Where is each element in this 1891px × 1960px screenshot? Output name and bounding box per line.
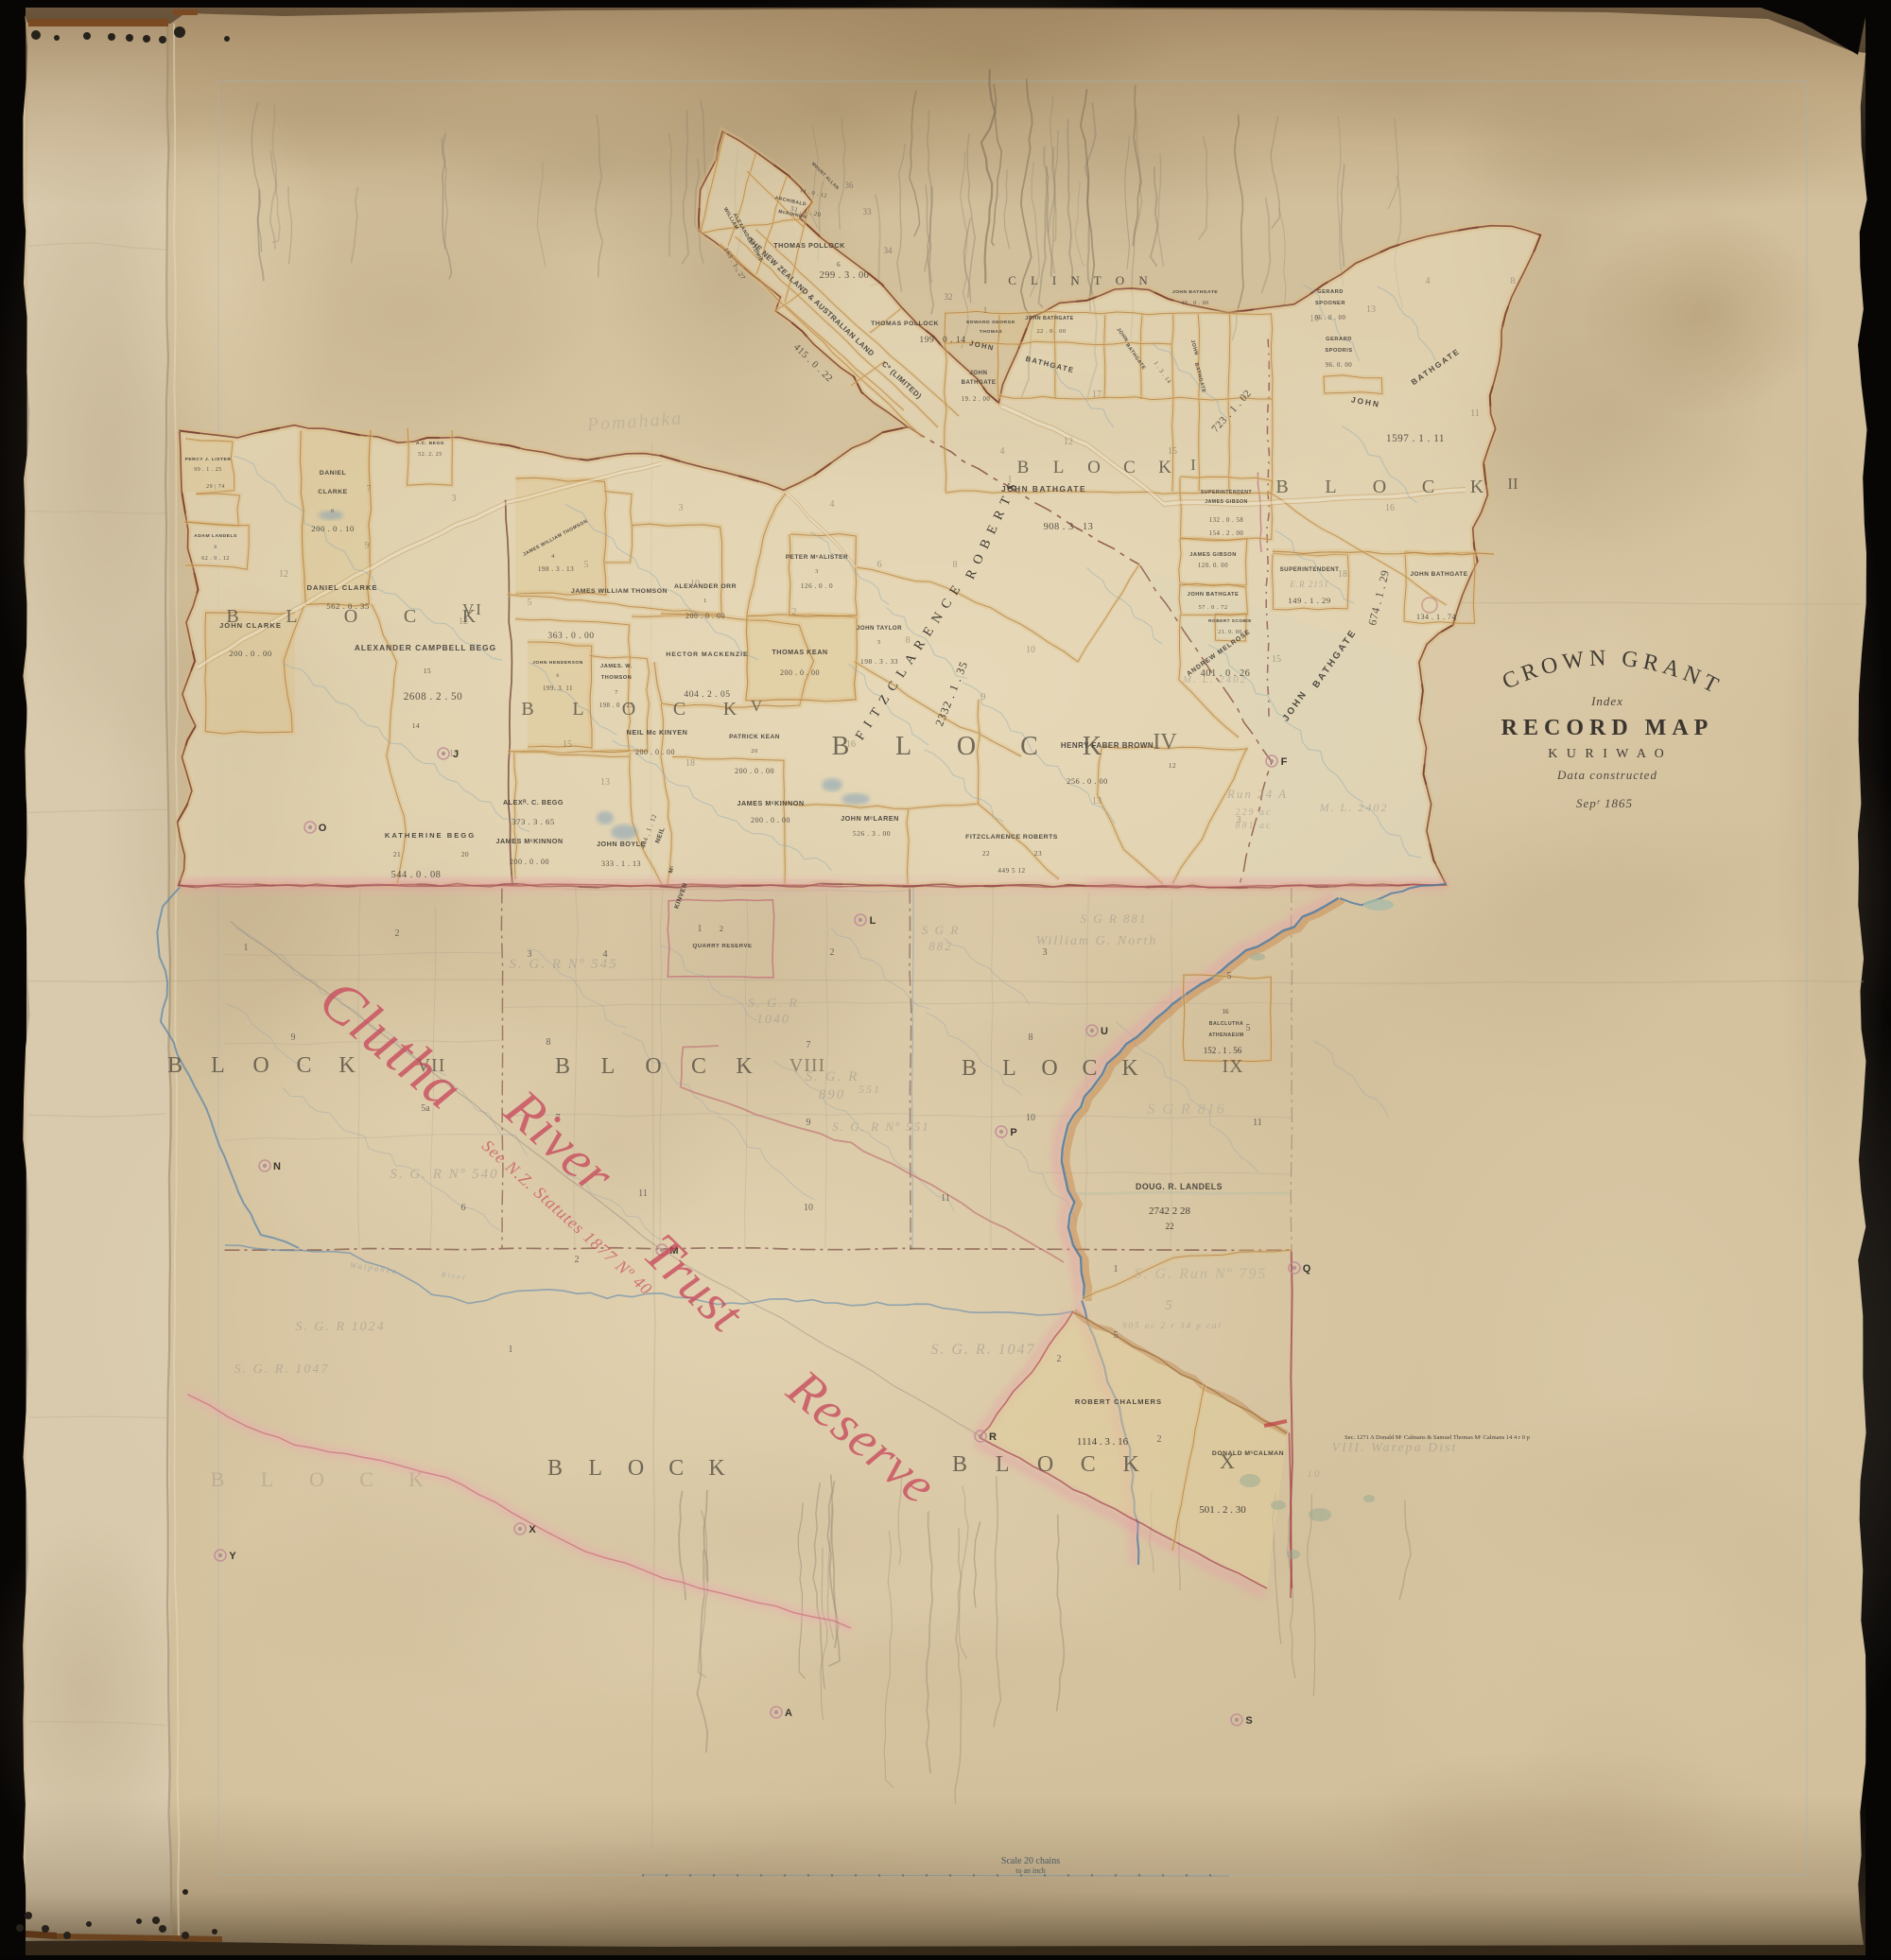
svg-text:5: 5 [528,598,532,608]
svg-text:905 ac 2 r 34 p cal: 905 ac 2 r 34 p cal [1122,1321,1223,1330]
svg-text:P: P [1010,1127,1016,1138]
svg-text:62 . 0 . 12: 62 . 0 . 12 [201,556,230,562]
svg-text:1114 . 3 . 16: 1114 . 3 . 16 [1077,1436,1129,1448]
svg-text:JOHN: JOHN [970,370,988,376]
svg-text:21: 21 [393,851,401,859]
svg-text:5: 5 [1246,1023,1251,1033]
svg-text:HENRY FABER BROWN: HENRY FABER BROWN [1061,741,1154,750]
svg-text:17: 17 [1092,390,1102,400]
svg-text:JAMES. W.: JAMES. W. [600,664,633,669]
svg-text:L: L [895,732,911,761]
svg-text:K: K [1158,458,1171,477]
svg-text:200 . 0 . 00: 200 . 0 . 00 [780,668,820,677]
svg-text:199. 3. 11: 199. 3. 11 [543,685,573,692]
svg-text:2: 2 [830,947,835,958]
svg-text:Q: Q [1303,1263,1311,1275]
svg-text:229 ac: 229 ac [1236,807,1273,818]
svg-text:8: 8 [546,1037,551,1048]
svg-text:15: 15 [563,739,572,750]
svg-text:11: 11 [1470,408,1480,419]
svg-text:Sepʳ 1865: Sepʳ 1865 [1576,796,1633,810]
svg-text:890: 890 [819,1087,846,1102]
svg-text:B: B [1275,477,1288,497]
svg-text:PATRICK KEAN: PATRICK KEAN [729,734,780,740]
svg-text:THOMAS: THOMAS [980,329,1003,335]
svg-text:5: 5 [1165,1298,1174,1313]
svg-text:Sec. 1271 A Donald Mᶜ Calma: Sec. 1271 A Donald Mᶜ Calmans & Samuel T… [1345,1434,1530,1441]
svg-text:256 . 0 . 00: 256 . 0 . 00 [1067,777,1108,786]
svg-text:U: U [1101,1026,1108,1037]
svg-text:L: L [1002,1056,1016,1081]
svg-text:William G. North: William G. North [1036,934,1158,948]
svg-text:O: O [957,732,976,761]
svg-text:1597 . 1 . 11: 1597 . 1 . 11 [1386,433,1445,444]
svg-text:JOHN CLARKE: JOHN CLARKE [219,621,282,630]
svg-text:PETER MᶜALISTER: PETER MᶜALISTER [786,554,848,561]
svg-text:THOMAS POLLOCK: THOMAS POLLOCK [871,321,939,327]
svg-text:JAMES MᶜKINNON: JAMES MᶜKINNON [737,799,804,807]
svg-text:ROBERT CHALMERS: ROBERT CHALMERS [1075,1397,1162,1406]
svg-text:C: C [1081,1452,1096,1477]
svg-text:20: 20 [461,851,469,859]
svg-text:1: 1 [1114,1264,1119,1275]
svg-text:96 . 0 . 00: 96 . 0 . 00 [1315,315,1346,321]
svg-text:12: 12 [1064,437,1073,447]
svg-text:4: 4 [551,553,555,560]
svg-text:C: C [1422,477,1434,497]
svg-text:C: C [673,699,685,720]
svg-text:IX: IX [1222,1056,1243,1077]
svg-text:908 . 3 . 13: 908 . 3 . 13 [1044,522,1094,532]
svg-text:DANIEL: DANIEL [320,470,346,477]
svg-text:C: C [404,606,416,627]
svg-text:S. G. R. 1047: S. G. R. 1047 [234,1362,330,1377]
svg-text:SPOONER: SPOONER [1315,301,1345,306]
svg-text:11: 11 [941,1193,950,1204]
svg-text:NEIL Mc KINYEN: NEIL Mc KINYEN [627,728,688,737]
svg-text:36: 36 [845,181,855,190]
svg-text:200 . 0 . 00: 200 . 0 . 00 [751,816,790,824]
svg-text:K: K [723,699,737,720]
svg-text:12: 12 [459,616,468,627]
svg-text:BALCLUTHA: BALCLUTHA [1209,1021,1243,1027]
svg-text:1: 1 [983,305,988,315]
svg-text:12: 12 [1169,762,1176,770]
svg-text:19: 19 [449,749,459,759]
svg-text:C: C [691,1054,706,1079]
svg-text:22: 22 [1166,1222,1174,1231]
svg-text:L: L [286,606,297,627]
svg-text:200 . 0 . 00: 200 . 0 . 00 [229,649,272,658]
svg-text:K: K [338,1053,356,1078]
svg-text:7: 7 [367,484,372,494]
svg-text:L: L [588,1456,602,1481]
svg-text:22: 22 [982,850,990,858]
svg-text:20: 20 [751,748,757,755]
svg-text:22 . 0 . 00: 22 . 0 . 00 [1036,328,1066,335]
svg-text:9: 9 [291,1032,296,1043]
svg-text:JAMES GIBSON: JAMES GIBSON [1189,552,1237,558]
svg-text:O: O [252,1053,269,1078]
svg-text:M. L. 2402: M. L. 2402 [1182,674,1247,685]
svg-text:O: O [1037,1452,1053,1477]
svg-text:ADAM LANDELS: ADAM LANDELS [194,533,237,539]
svg-text:199 . 0 . 14: 199 . 0 . 14 [919,335,965,345]
svg-text:S. G. R: S. G. R [806,1069,859,1084]
svg-text:F: F [1281,756,1288,768]
svg-text:12: 12 [279,569,288,580]
svg-text:JAMES WILLIAM THOMSON: JAMES WILLIAM THOMSON [571,588,668,595]
svg-text:Y: Y [229,1551,236,1562]
svg-text:200 . 0 . 00: 200 . 0 . 00 [735,767,774,775]
svg-text:126 . 0 . 0: 126 . 0 . 0 [801,582,833,590]
svg-text:18: 18 [685,758,695,769]
svg-text:Scale 20 chains: Scale 20 chains [1001,1856,1060,1866]
svg-text:10: 10 [1026,645,1035,655]
svg-text:B: B [962,1056,977,1081]
svg-text:GERARD: GERARD [1317,289,1344,295]
svg-text:S. G. Run Nº 795: S. G. Run Nº 795 [1135,1266,1268,1282]
svg-text:32: 32 [945,292,953,302]
svg-text:29 | 74: 29 | 74 [206,484,225,490]
svg-text:O: O [319,823,327,834]
svg-text:K U R I W A O: K U R I W A O [1548,747,1667,761]
svg-text:HECTOR MACKENZIE: HECTOR MACKENZIE [666,651,748,658]
svg-text:B: B [952,1452,967,1477]
svg-text:GERARD: GERARD [1326,337,1352,342]
svg-text:O: O [645,1054,661,1079]
svg-text:4: 4 [830,499,835,510]
svg-text:PERCY J. LISTER: PERCY J. LISTER [185,457,232,462]
svg-text:S G R 816: S G R 816 [1147,1101,1225,1118]
svg-text:L: L [996,1452,1010,1477]
svg-text:L: L [572,699,583,720]
svg-text:14: 14 [412,722,420,730]
svg-text:13: 13 [1092,796,1102,807]
svg-text:B: B [1017,458,1030,477]
svg-text:L: L [870,915,876,927]
svg-text:404 . 2 . 05: 404 . 2 . 05 [684,689,730,700]
svg-text:2: 2 [792,607,797,617]
svg-text:II: II [1507,475,1518,493]
svg-text:8: 8 [1029,1032,1033,1043]
svg-text:8: 8 [953,560,958,570]
svg-text:S. G. R 1024: S. G. R 1024 [295,1320,385,1334]
svg-text:96. 0. 00: 96. 0. 00 [1326,362,1352,369]
svg-text:882: 882 [928,939,953,953]
svg-text:JOHN HENDERSON: JOHN HENDERSON [532,660,583,666]
svg-text:7: 7 [807,1040,811,1050]
svg-text:QUARRY RESERVE: QUARRY RESERVE [693,944,753,949]
svg-text:526 . 3 . 00: 526 . 3 . 00 [853,829,891,838]
svg-text:SUPERINTENDENT: SUPERINTENDENT [1280,566,1340,573]
svg-text:L: L [601,1054,616,1079]
svg-text:200 . 0 . 00: 200 . 0 . 00 [510,858,549,866]
svg-text:8: 8 [214,545,217,550]
svg-text:R: R [989,1431,997,1443]
svg-text:C: C [1020,732,1038,761]
svg-text:L: L [1053,458,1065,477]
svg-text:10: 10 [804,1203,813,1213]
svg-text:B: B [521,699,533,720]
svg-text:198 . 0 . 25: 198 . 0 . 25 [599,702,634,709]
svg-text:JAMES MᶜKINNON: JAMES MᶜKINNON [495,837,563,845]
svg-text:B: B [211,1467,225,1491]
svg-text:L: L [1325,477,1336,497]
svg-text:JOHN MᶜLAREN: JOHN MᶜLAREN [841,814,899,823]
svg-text:449 5 12: 449 5 12 [998,867,1025,875]
svg-text:JOHN BATHGATE: JOHN BATHGATE [1172,289,1218,295]
svg-text:5: 5 [877,640,881,646]
svg-text:I: I [1190,456,1196,474]
svg-text:9: 9 [981,692,986,702]
svg-text:JAMES GIBSON: JAMES GIBSON [1205,499,1248,505]
svg-text:THOMAS POLLOCK: THOMAS POLLOCK [773,241,845,250]
svg-text:19. 2 . 00: 19. 2 . 00 [962,396,991,403]
svg-text:8: 8 [1511,276,1516,286]
svg-text:15: 15 [1272,654,1281,665]
svg-text:16: 16 [1223,1008,1230,1015]
svg-text:99 . 1 . 25: 99 . 1 . 25 [194,467,222,473]
svg-text:551: 551 [859,1083,881,1096]
svg-text:Data constructed: Data constructed [1556,768,1657,782]
svg-text:K: K [1470,477,1484,497]
svg-text:200 . 0 . 00: 200 . 0 . 00 [685,612,725,620]
svg-text:5: 5 [1114,1330,1119,1341]
svg-text:K: K [1122,1452,1139,1477]
svg-text:6: 6 [837,261,841,269]
svg-text:7: 7 [615,690,618,696]
svg-text:9: 9 [365,541,370,551]
svg-text:C: C [296,1053,311,1078]
svg-text:Index: Index [1590,694,1623,708]
svg-text:11: 11 [1253,1118,1262,1128]
svg-text:JOHN BATHGATE: JOHN BATHGATE [1001,484,1086,494]
svg-text:ROBERT SCOBIE: ROBERT SCOBIE [1208,618,1252,623]
svg-text:S. G. R. 1047: S. G. R. 1047 [930,1342,1035,1358]
svg-text:THOMAS KEAN: THOMAS KEAN [772,648,827,656]
svg-text:IV: IV [1153,730,1177,755]
svg-text:S G R 881: S G R 881 [1080,911,1147,926]
svg-text:KATHERINE BEGG: KATHERINE BEGG [385,831,476,840]
svg-text:57 . 0 . 72: 57 . 0 . 72 [1198,604,1227,611]
svg-text:ALEXANDER CAMPBELL BEGG: ALEXANDER CAMPBELL BEGG [355,643,496,652]
svg-text:B: B [167,1053,182,1078]
svg-text:N: N [273,1161,281,1172]
svg-text:JOHN BATHGATE: JOHN BATHGATE [1025,316,1073,321]
svg-text:DONALD MᶜCALMAN: DONALD MᶜCALMAN [1212,1450,1284,1457]
svg-text:S. G. R Nº 551: S. G. R Nº 551 [832,1119,930,1134]
svg-text:K: K [408,1467,424,1491]
svg-text:562 . 0 . 35: 562 . 0 . 35 [326,601,370,611]
svg-text:S. G. R Nº 545: S. G. R Nº 545 [509,957,617,972]
svg-text:10: 10 [1308,1468,1322,1480]
svg-text:S. G. R: S. G. R [748,997,799,1011]
svg-text:6: 6 [556,673,559,679]
svg-text:3: 3 [679,503,684,513]
svg-text:S. G. R Nº 540: S. G. R Nº 540 [390,1167,498,1182]
svg-text:1: 1 [698,924,703,934]
svg-text:3: 3 [815,568,819,575]
svg-text:10: 10 [1026,1113,1035,1123]
svg-text:JOHN BATHGATE: JOHN BATHGATE [1410,571,1467,578]
svg-text:1: 1 [509,1344,513,1355]
svg-text:THOMSON: THOMSON [601,675,633,681]
svg-text:to an inch: to an inch [1015,1866,1046,1875]
svg-text:2: 2 [1057,1354,1062,1364]
svg-text:C: C [1082,1056,1097,1081]
svg-text:O: O [1373,477,1386,497]
svg-text:1: 1 [703,598,707,604]
svg-text:E.R 2151: E.R 2151 [1289,580,1329,589]
svg-text:6: 6 [331,508,335,514]
svg-text:15: 15 [1168,446,1177,457]
svg-text:2608 . 2 . 50: 2608 . 2 . 50 [404,691,462,702]
svg-text:40 . 0 . 00: 40 . 0 . 00 [1181,301,1209,306]
svg-text:JOHN TAYLOR: JOHN TAYLOR [857,625,902,632]
svg-text:881 ac: 881 ac [1236,821,1273,831]
svg-text:DOUG. R. LANDELS: DOUG. R. LANDELS [1136,1182,1223,1191]
svg-text:16: 16 [846,739,856,750]
svg-text:ATHENAEUM: ATHENAEUM [1208,1032,1243,1038]
svg-text:A.C. BEGG: A.C. BEGG [416,441,444,446]
svg-text:RECORD MAP: RECORD MAP [1501,716,1714,740]
svg-text:A: A [785,1708,792,1719]
svg-text:FITZCLARENCE ROBERTS: FITZCLARENCE ROBERTS [965,834,1058,841]
svg-text:K: K [1121,1056,1138,1081]
svg-text:5: 5 [1227,971,1232,981]
svg-text:SUPERINTENDENT: SUPERINTENDENT [1201,490,1253,495]
svg-text:152 . 1 . 56: 152 . 1 . 56 [1204,1046,1242,1055]
svg-text:15: 15 [424,668,431,675]
svg-text:BATHGATE: BATHGATE [962,379,997,386]
svg-text:2: 2 [575,1255,580,1265]
svg-text:363 . 0 . 00: 363 . 0 . 00 [547,631,594,641]
svg-text:B: B [555,1054,570,1079]
svg-text:1: 1 [244,943,249,953]
svg-text:16: 16 [1385,503,1395,513]
svg-text:4: 4 [1426,276,1431,286]
svg-text:O: O [1041,1056,1057,1081]
svg-text:S: S [1245,1715,1252,1726]
svg-text:VIII. Warepa Dist: VIII. Warepa Dist [1332,1441,1458,1455]
svg-text:34: 34 [884,246,893,255]
svg-text:8: 8 [906,635,911,646]
svg-text:134 . 1 . 74: 134 . 1 . 74 [1416,613,1456,621]
svg-text:M. L. 2402: M. L. 2402 [1319,801,1389,814]
svg-text:154 . 2 . 00: 154 . 2 . 00 [1209,530,1244,537]
svg-text:O: O [309,1467,324,1491]
svg-text:200 . 0 . 00: 200 . 0 . 00 [635,748,675,756]
svg-text:501 . 2 . 30: 501 . 2 . 30 [1199,1504,1246,1516]
svg-text:13: 13 [600,777,610,788]
svg-text:6: 6 [461,1203,466,1213]
svg-text:Run 24 A: Run 24 A [1226,787,1288,801]
svg-text:SPODRIS: SPODRIS [1325,348,1352,354]
svg-text:149 . 1 . 29: 149 . 1 . 29 [1288,596,1331,605]
svg-text:L: L [211,1053,225,1078]
svg-text:299 . 3 . 00: 299 . 3 . 00 [820,270,870,281]
svg-text:DANIEL CLARKE: DANIEL CLARKE [307,583,378,592]
svg-text:6: 6 [877,560,882,570]
svg-text:K: K [736,1054,753,1079]
svg-text:13: 13 [1366,304,1376,315]
svg-text:33: 33 [863,207,873,217]
svg-text:9: 9 [807,1118,811,1128]
svg-text:132 . 0 . 58: 132 . 0 . 58 [1209,517,1244,524]
svg-text:18: 18 [1338,569,1347,580]
svg-text:B: B [547,1456,563,1481]
svg-text:O: O [628,1456,644,1481]
svg-text:O: O [1087,458,1101,477]
svg-text:2: 2 [395,928,400,939]
svg-text:2: 2 [1157,1434,1162,1445]
svg-text:1040: 1040 [756,1013,790,1027]
svg-text:C L I N T O N: C L I N T O N [1008,273,1154,287]
svg-text:CLARKE: CLARKE [318,489,347,495]
svg-text:X: X [529,1524,536,1535]
svg-text:2: 2 [720,925,723,933]
svg-text:333 . 1 . 13: 333 . 1 . 13 [601,859,641,868]
svg-text:S G R: S G R [922,923,960,937]
svg-text:K: K [708,1456,725,1481]
svg-text:3: 3 [452,494,457,504]
svg-text:JOHN BATHGATE: JOHN BATHGATE [1188,592,1240,598]
svg-text:L: L [261,1467,273,1491]
svg-text:ALEXANDER ORR: ALEXANDER ORR [674,583,737,590]
svg-text:198 . 3 . 13: 198 . 3 . 13 [538,565,574,573]
svg-text:198 . 3 . 33: 198 . 3 . 33 [860,657,898,666]
svg-text:5: 5 [584,560,589,570]
svg-text:11: 11 [638,1188,648,1199]
svg-text:3: 3 [1043,947,1048,958]
svg-text:200 . 0 . 10: 200 . 0 . 10 [311,524,355,533]
svg-text:C: C [668,1456,684,1481]
svg-text:C: C [1123,458,1136,477]
svg-text:EDWARD GEORGE: EDWARD GEORGE [966,320,1015,325]
svg-text:2742 2 28: 2742 2 28 [1149,1205,1191,1217]
svg-text:4: 4 [1000,446,1005,457]
svg-text:C: C [359,1467,373,1491]
svg-text:544 . 0 . 08: 544 . 0 . 08 [391,870,442,880]
svg-text:52. 2. 25: 52. 2. 25 [418,452,442,458]
svg-text:V: V [751,697,763,715]
svg-text:120. 0. 00: 120. 0. 00 [1198,563,1228,569]
svg-text:ALEXᴿ. C. BEGG: ALEXᴿ. C. BEGG [503,798,564,807]
svg-text:23: 23 [1034,850,1042,858]
svg-text:373 . 3 . 65: 373 . 3 . 65 [512,817,555,826]
